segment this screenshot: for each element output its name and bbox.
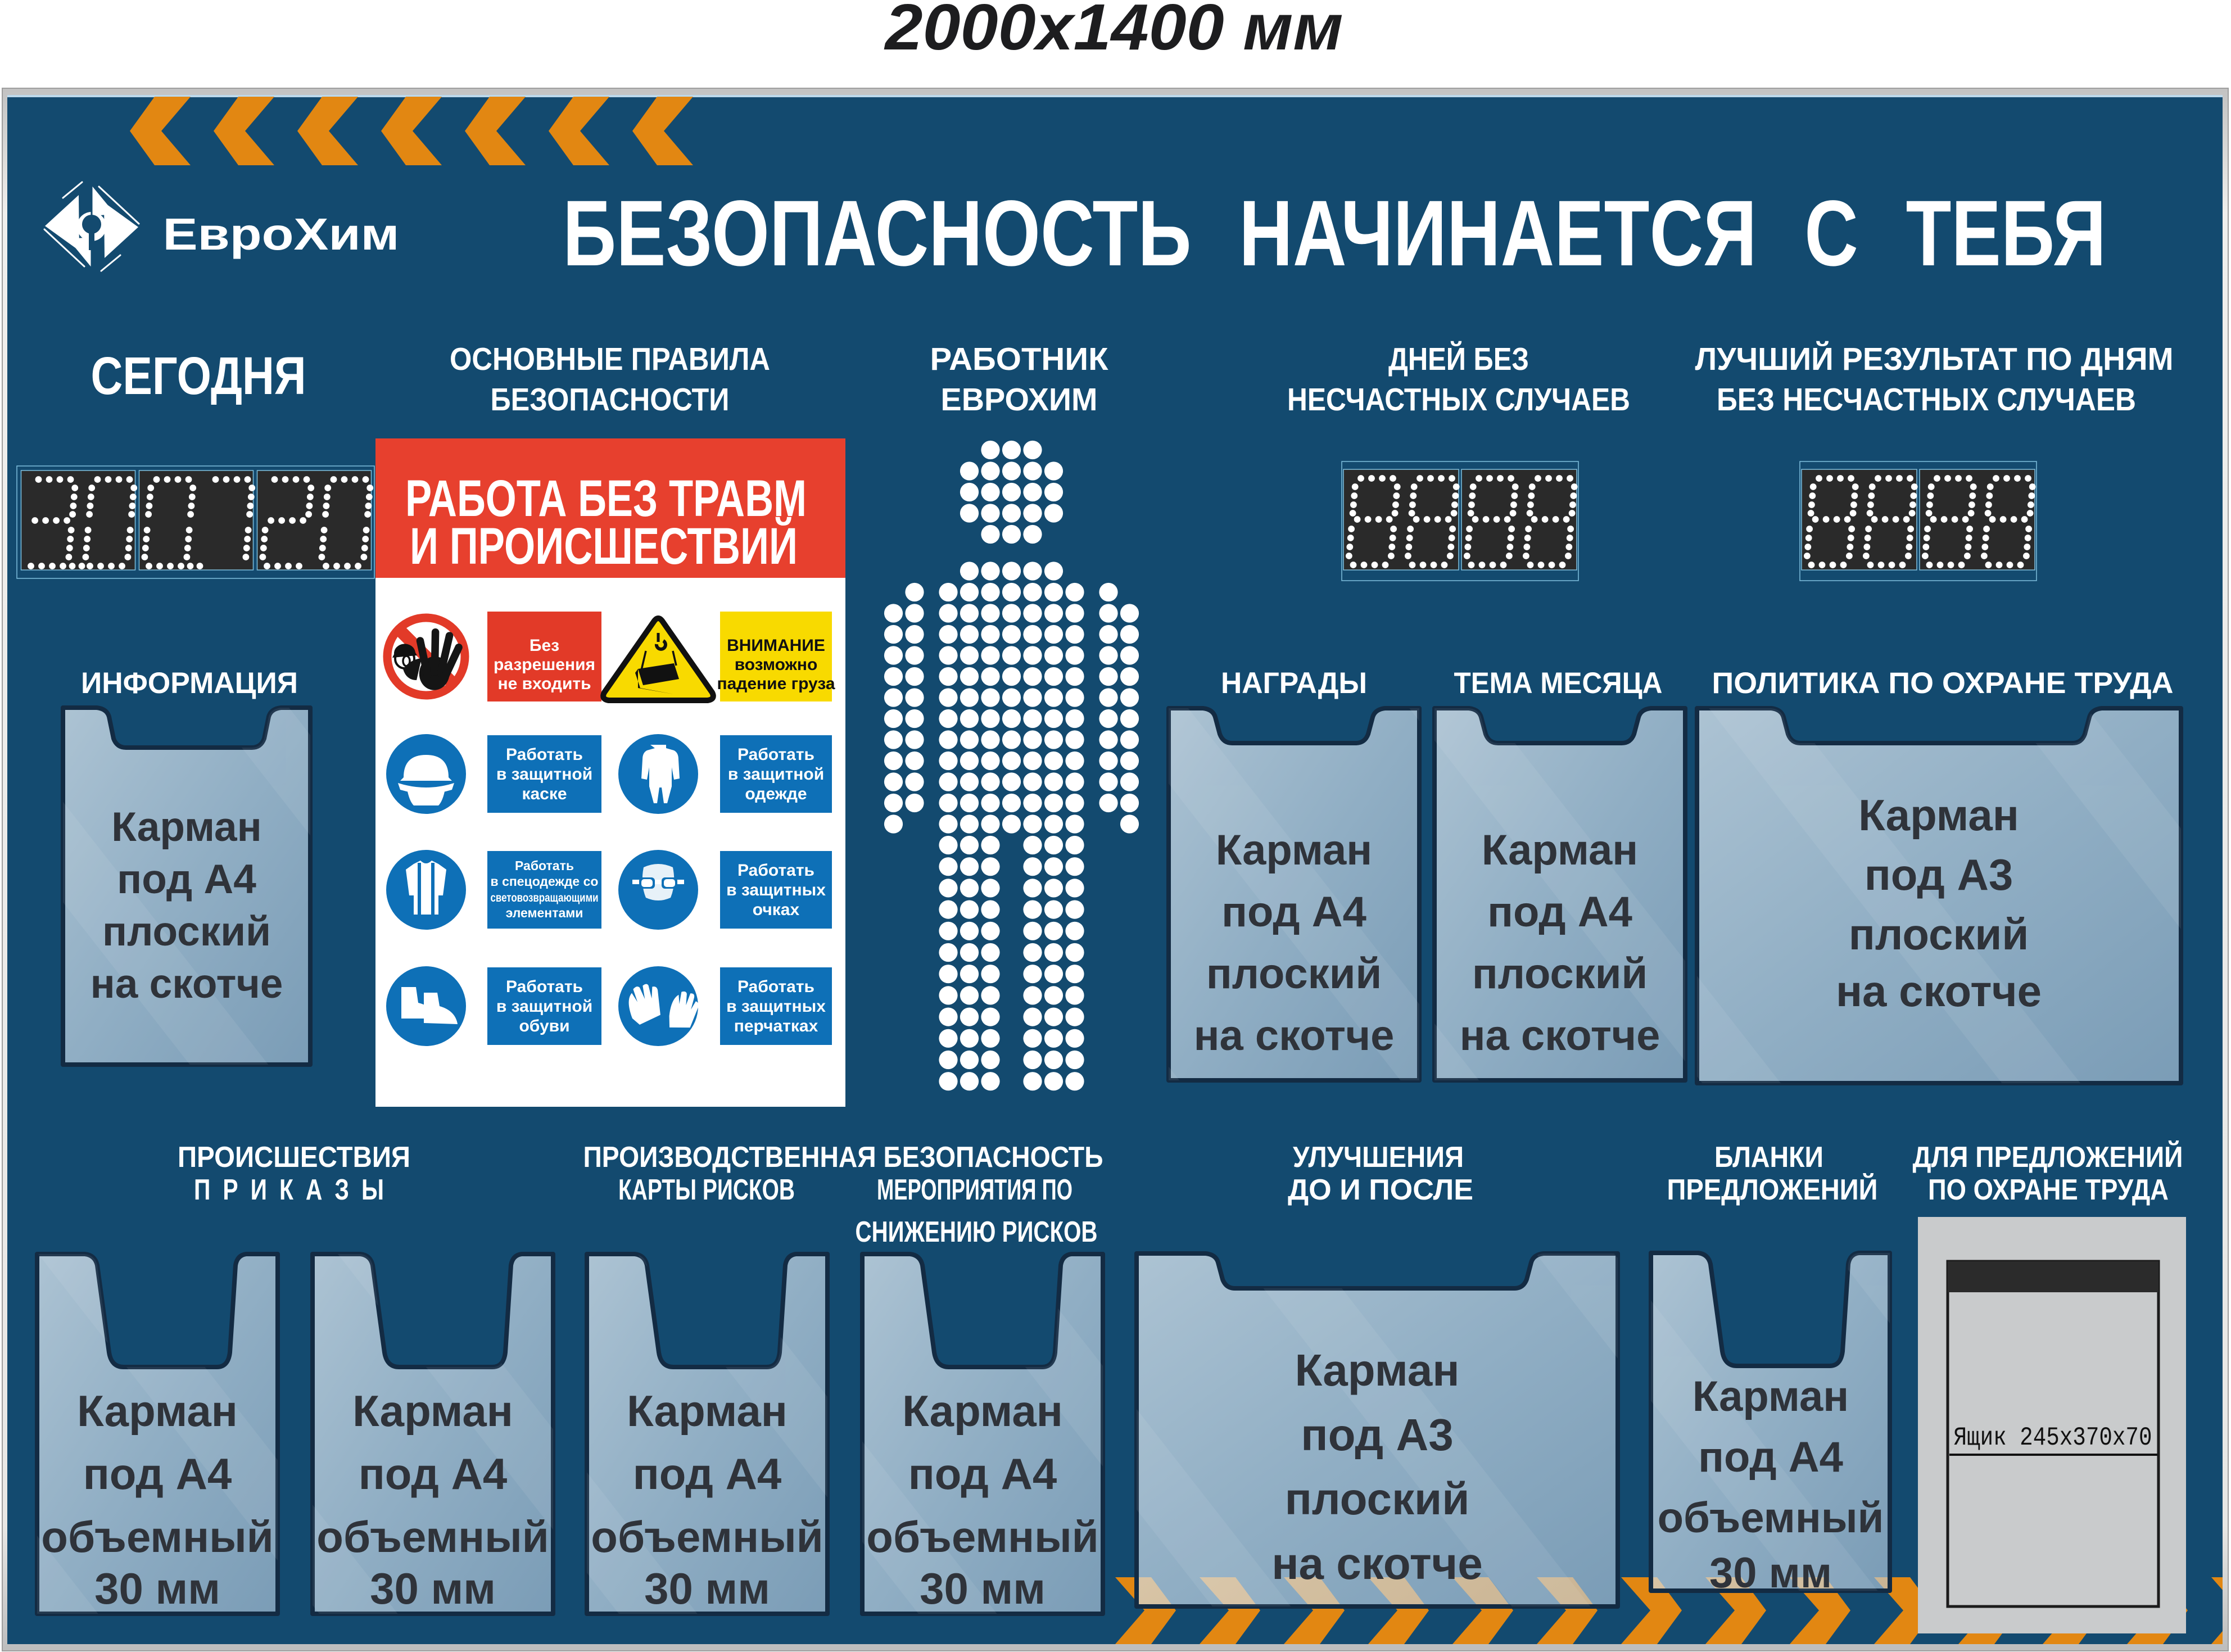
svg-text:световозвращающими: световозвращающими [491,891,599,904]
svg-text:под А4: под А4 [1221,888,1366,936]
svg-text:ПО ОХРАНЕ ТРУДА: ПО ОХРАНЕ ТРУДА [1928,1174,2169,1206]
svg-text:обуви: обуви [519,1017,569,1035]
svg-text:Карман: Карман [1693,1373,1849,1420]
svg-text:БЕЗОПАСНОСТИ: БЕЗОПАСНОСТИ [491,382,730,418]
svg-text:Работать: Работать [506,745,583,764]
svg-text:возможно: возможно [735,655,818,674]
svg-text:на скотче: на скотче [1194,1012,1395,1060]
svg-text:Работать: Работать [737,861,814,880]
svg-text:под А3: под А3 [1865,850,2013,899]
svg-text:ВНИМАНИЕ: ВНИМАНИЕ [727,636,825,655]
svg-text:СНИЖЕНИЮ РИСКОВ: СНИЖЕНИЮ РИСКОВ [856,1216,1098,1248]
svg-text:30 мм: 30 мм [94,1564,220,1613]
svg-text:под А4: под А4 [1487,888,1632,936]
svg-text:разрешения: разрешения [494,655,595,674]
svg-text:в защитной: в защитной [496,765,592,784]
svg-text:плоский: плоский [1206,950,1382,998]
svg-text:плоский: плоский [1849,909,2029,959]
svg-text:объемный: объемный [1658,1494,1884,1542]
svg-text:ДО И ПОСЛЕ: ДО И ПОСЛЕ [1288,1174,1473,1206]
svg-text:Карман: Карман [1295,1345,1459,1395]
svg-text:Работать: Работать [737,745,814,764]
svg-text:Карман: Карман [627,1386,788,1436]
svg-text:Работать: Работать [515,858,574,873]
svg-text:СЕГОДНЯ: СЕГОДНЯ [91,346,306,406]
svg-text:ИНФОРМАЦИЯ: ИНФОРМАЦИЯ [81,667,298,700]
svg-text:в защитной: в защитной [496,997,592,1016]
svg-text:30 мм: 30 мм [920,1564,1046,1613]
svg-text:Карман: Карман [1858,790,2019,840]
svg-text:Работать: Работать [737,977,814,996]
svg-text:РАБОТНИК: РАБОТНИК [930,341,1108,377]
svg-text:очках: очках [753,900,800,919]
svg-text:на скотче: на скотче [1836,966,2042,1016]
svg-text:ПРИКАЗЫ: ПРИКАЗЫ [194,1174,396,1206]
svg-text:2000х1400 мм: 2000х1400 мм [884,0,1343,64]
svg-text:под А4: под А4 [83,1449,232,1499]
svg-text:элементами: элементами [506,906,583,920]
svg-text:Карман: Карман [77,1386,238,1436]
svg-text:ПРОИСШЕСТВИЯ: ПРОИСШЕСТВИЯ [178,1141,410,1174]
svg-text:ЕВРОХИМ: ЕВРОХИМ [941,382,1098,418]
svg-text:объемный: объемный [316,1512,549,1562]
svg-text:МЕРОПРИЯТИЯ ПО: МЕРОПРИЯТИЯ ПО [877,1174,1072,1206]
svg-text:И ПРОИСШЕСТВИЙ: И ПРОИСШЕСТВИЙ [410,517,798,575]
svg-text:на скотче: на скотче [1271,1538,1483,1588]
svg-text:падение груза: падение груза [717,675,835,693]
svg-text:ЕвроХим: ЕвроХим [163,209,400,259]
svg-text:ОСНОВНЫЕ ПРАВИЛА: ОСНОВНЫЕ ПРАВИЛА [450,341,770,377]
svg-text:Карман: Карман [111,804,261,850]
svg-text:ДЛЯ ПРЕДЛОЖЕНИЙ: ДЛЯ ПРЕДЛОЖЕНИЙ [1913,1140,2183,1174]
svg-text:перчатках: перчатках [734,1017,818,1035]
svg-text:под А4: под А4 [908,1449,1057,1499]
svg-text:на скотче: на скотче [90,961,283,1007]
svg-text:БЛАНКИ: БЛАНКИ [1714,1141,1823,1174]
svg-text:ПОЛИТИКА ПО ОХРАНЕ ТРУДА: ПОЛИТИКА ПО ОХРАНЕ ТРУДА [1712,667,2174,700]
svg-text:КАРТЫ РИСКОВ: КАРТЫ РИСКОВ [618,1174,795,1206]
svg-text:30 мм: 30 мм [1709,1549,1832,1597]
svg-text:НЕСЧАСТНЫХ СЛУЧАЕВ: НЕСЧАСТНЫХ СЛУЧАЕВ [1287,382,1630,418]
svg-text:объемный: объемный [41,1512,273,1562]
svg-text:не входить: не входить [497,675,591,693]
svg-text:плоский: плоский [1285,1474,1470,1524]
svg-text:Без: Без [530,636,559,655]
svg-text:в спецодежде со: в спецодежде со [491,874,599,889]
svg-text:30 мм: 30 мм [370,1564,496,1613]
svg-text:одежде: одежде [745,785,807,803]
svg-text:ДНЕЙ БЕЗ: ДНЕЙ БЕЗ [1388,341,1529,377]
svg-text:в защитной: в защитной [728,765,824,784]
svg-text:под А3: под А3 [1301,1410,1453,1460]
svg-text:Карман: Карман [1482,826,1638,874]
svg-text:ЛУЧШИЙ РЕЗУЛЬТАТ ПО ДНЯМ: ЛУЧШИЙ РЕЗУЛЬТАТ ПО ДНЯМ [1695,341,2174,377]
svg-text:плоский: плоский [102,909,271,954]
svg-text:НАГРАДЫ: НАГРАДЫ [1221,667,1367,700]
svg-text:под А4: под А4 [1698,1433,1843,1481]
svg-text:плоский: плоский [1472,950,1648,998]
svg-text:ПРОИЗВОДСТВЕННАЯ БЕЗОПАСНОСТЬ: ПРОИЗВОДСТВЕННАЯ БЕЗОПАСНОСТЬ [583,1141,1103,1174]
svg-text:Карман: Карман [1216,826,1372,874]
svg-text:Работать: Работать [506,977,583,996]
svg-text:под А4: под А4 [117,857,256,902]
svg-text:Карман: Карман [352,1386,513,1436]
svg-text:на скотче: на скотче [1460,1012,1660,1060]
svg-text:объемный: объемный [866,1512,1098,1562]
svg-text:30 мм: 30 мм [644,1564,770,1613]
svg-text:Карман: Карман [902,1386,1063,1436]
svg-text:в защитных: в защитных [726,997,826,1016]
svg-text:Ящик 245х370х70: Ящик 245х370х70 [1954,1423,2152,1452]
svg-text:под А4: под А4 [633,1449,782,1499]
svg-text:каске: каске [522,785,567,803]
svg-text:ТЕМА МЕСЯЦА: ТЕМА МЕСЯЦА [1454,667,1663,700]
svg-text:УЛУЧШЕНИЯ: УЛУЧШЕНИЯ [1293,1141,1464,1174]
svg-text:объемный: объемный [591,1512,823,1562]
svg-text:под А4: под А4 [359,1449,508,1499]
svg-text:БЕЗ НЕСЧАСТНЫХ СЛУЧАЕВ: БЕЗ НЕСЧАСТНЫХ СЛУЧАЕВ [1717,382,2136,418]
svg-text:ПРЕДЛОЖЕНИЙ: ПРЕДЛОЖЕНИЙ [1667,1173,1878,1206]
svg-text:в защитных: в защитных [726,881,826,899]
svg-text:БЕЗОПАСНОСТЬ НАЧИНАЕТСЯ С ТЕБЯ: БЕЗОПАСНОСТЬ НАЧИНАЕТСЯ С ТЕБЯ [563,182,2106,286]
